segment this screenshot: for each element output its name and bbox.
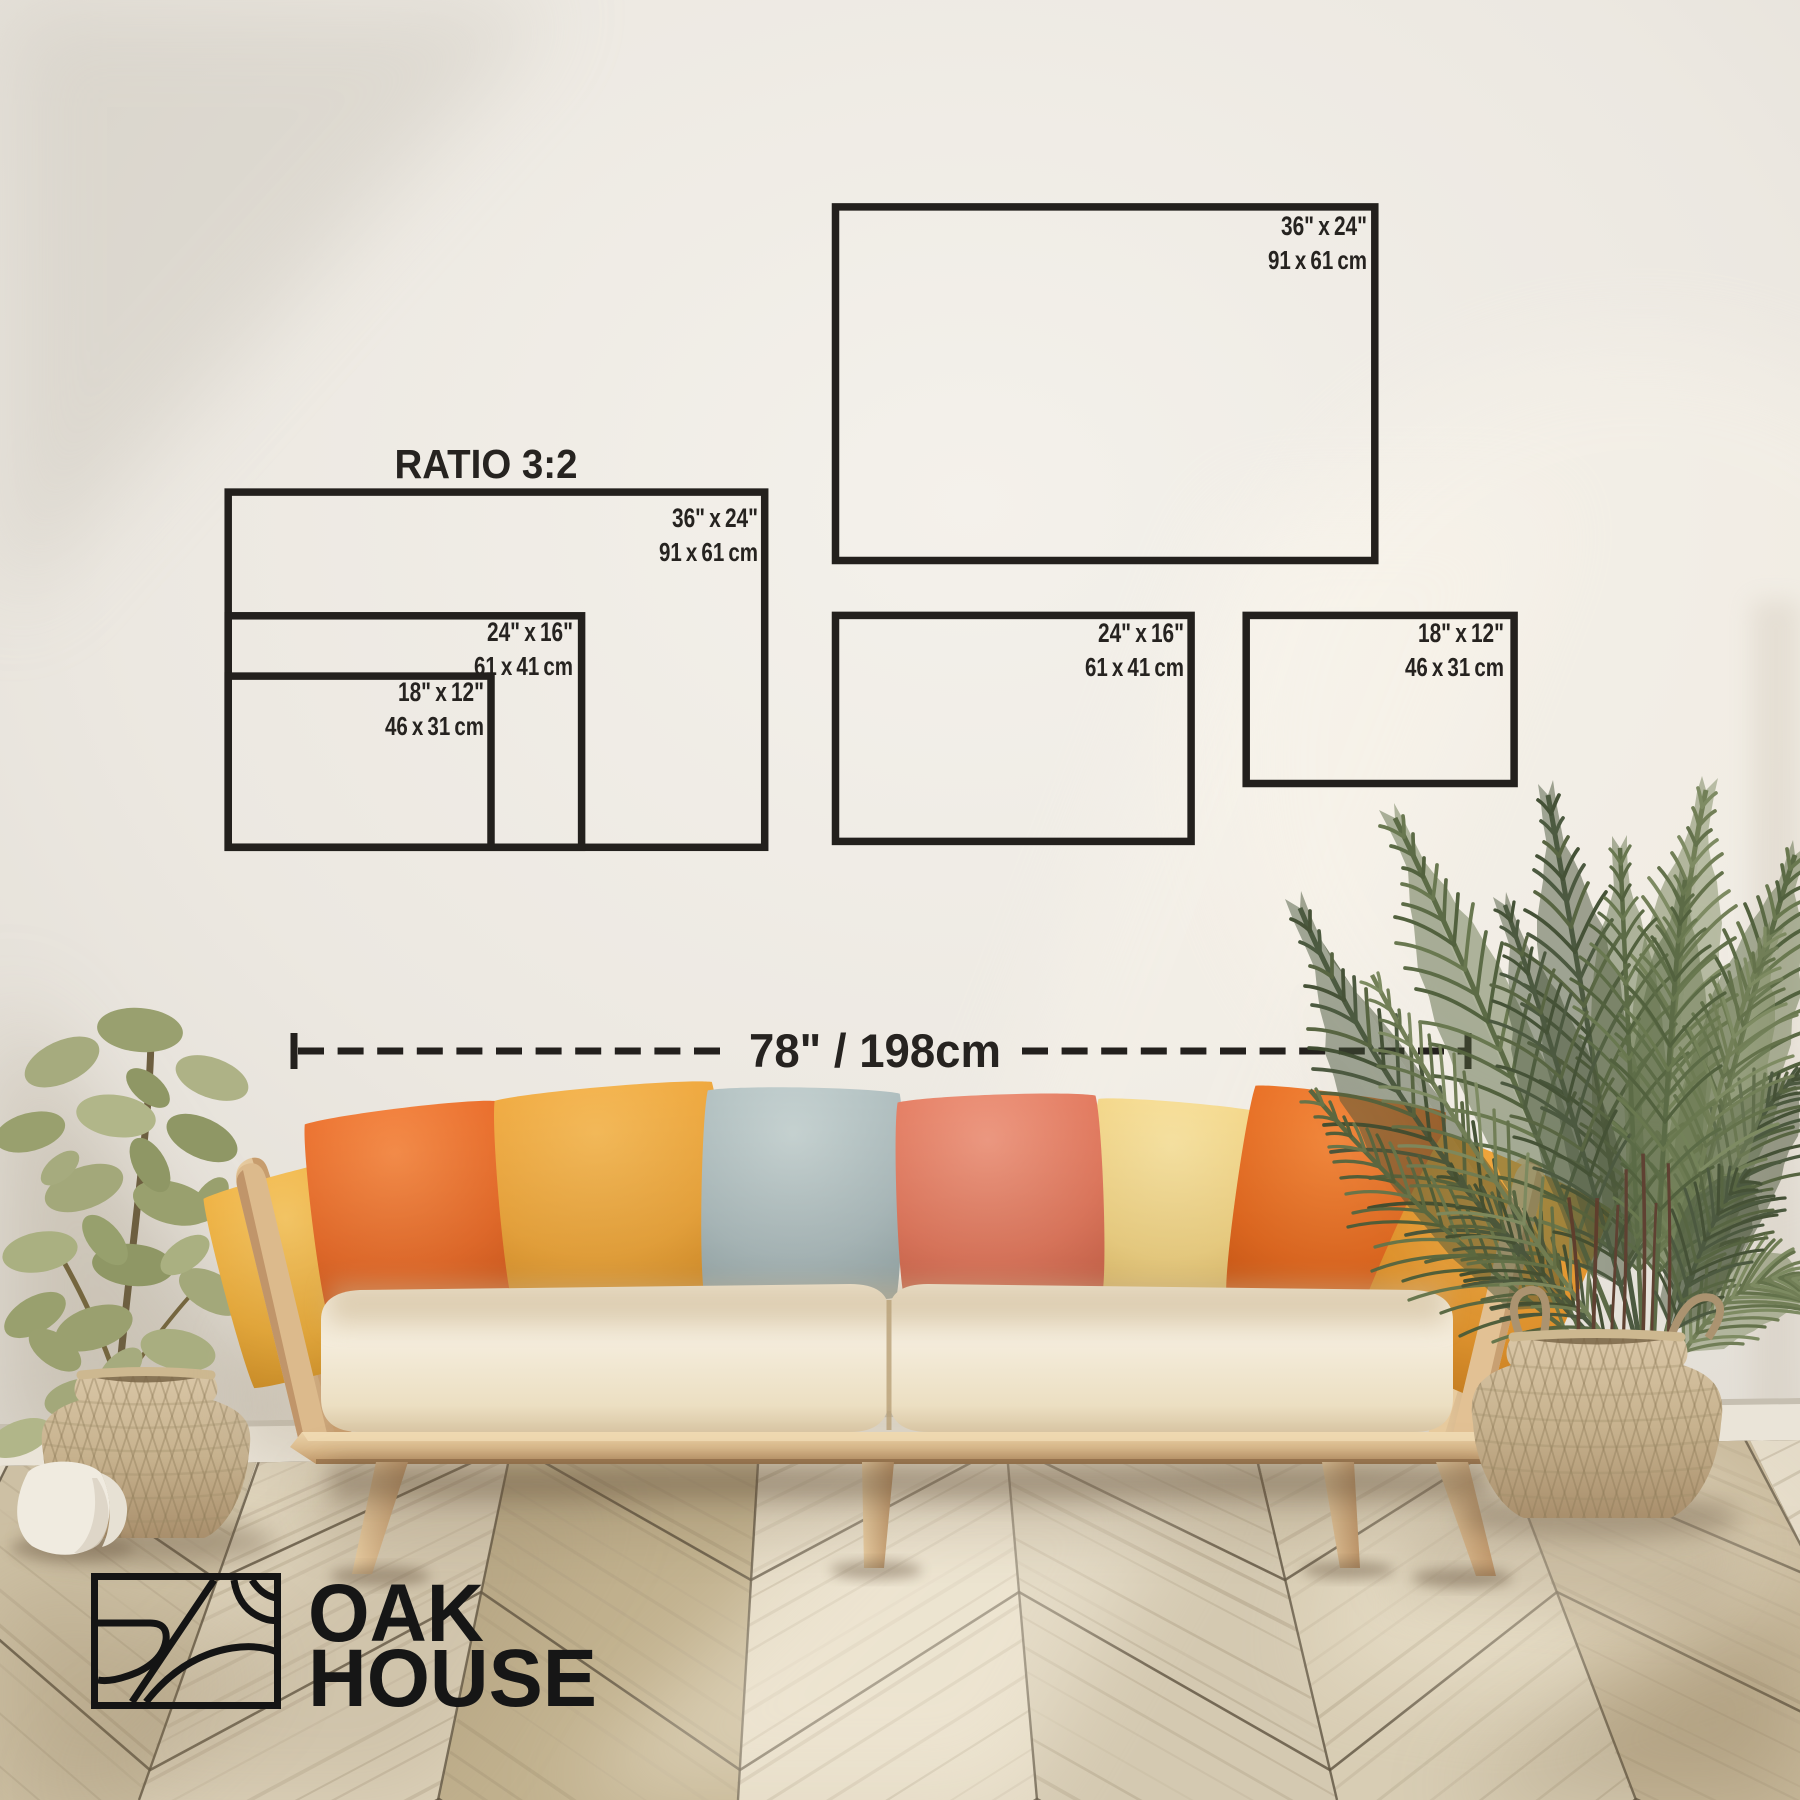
svg-text:HOUSE: HOUSE (308, 1633, 597, 1724)
svg-text:61 x 41 cm: 61 x 41 cm (1085, 652, 1184, 682)
svg-text:18" x 12": 18" x 12" (1418, 618, 1504, 648)
svg-text:36" x 24": 36" x 24" (672, 503, 758, 533)
svg-text:46 x 31 cm: 46 x 31 cm (385, 711, 484, 741)
svg-text:24" x 16": 24" x 16" (487, 617, 573, 647)
svg-text:24" x 16": 24" x 16" (1098, 618, 1184, 648)
svg-text:78" / 198cm: 78" / 198cm (749, 1024, 1001, 1077)
svg-text:36" x 24": 36" x 24" (1281, 211, 1367, 241)
svg-text:91 x 61 cm: 91 x 61 cm (1268, 245, 1367, 275)
svg-text:46 x 31 cm: 46 x 31 cm (1405, 652, 1504, 682)
svg-text:91 x 61 cm: 91 x 61 cm (659, 537, 758, 567)
svg-text:18" x 12": 18" x 12" (398, 677, 484, 707)
svg-text:RATIO 3:2: RATIO 3:2 (395, 441, 578, 487)
